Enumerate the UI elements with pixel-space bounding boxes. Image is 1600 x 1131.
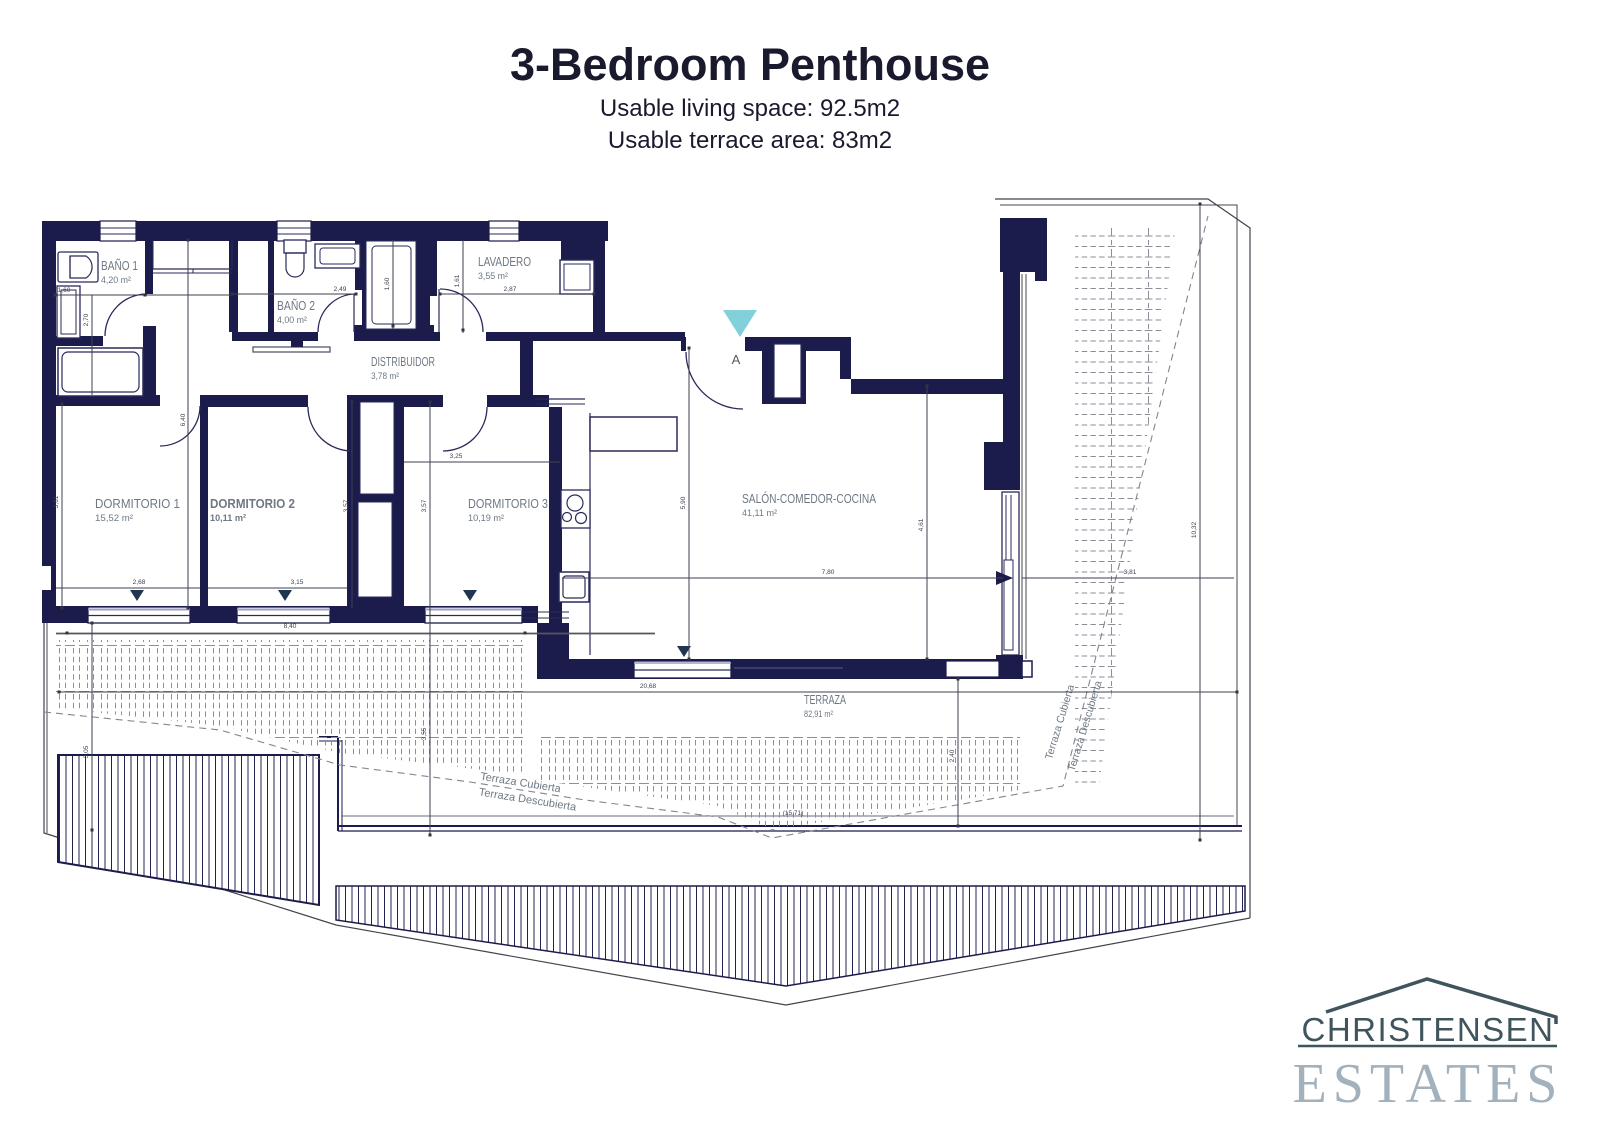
svg-text:DORMITORIO 1: DORMITORIO 1 bbox=[95, 496, 180, 511]
svg-text:3,81: 3,81 bbox=[1124, 569, 1137, 576]
svg-text:3,61: 3,61 bbox=[53, 495, 60, 508]
svg-text:SALÓN-COMEDOR-COCINA: SALÓN-COMEDOR-COCINA bbox=[742, 491, 876, 506]
svg-text:Usable living space: 92.5m2: Usable living space: 92.5m2 bbox=[600, 95, 900, 122]
svg-text:3,15: 3,15 bbox=[291, 579, 304, 586]
svg-text:3-Bedroom Penthouse: 3-Bedroom Penthouse bbox=[510, 39, 990, 90]
svg-text:5,90: 5,90 bbox=[680, 496, 687, 509]
svg-text:3,78 m²: 3,78 m² bbox=[371, 371, 399, 382]
svg-text:4,20 m²: 4,20 m² bbox=[101, 275, 131, 286]
svg-text:2,70: 2,70 bbox=[83, 313, 90, 326]
svg-text:4,00 m²: 4,00 m² bbox=[277, 315, 307, 326]
svg-text:2,68: 2,68 bbox=[133, 579, 146, 586]
svg-text:(15,71): (15,71) bbox=[783, 810, 804, 817]
svg-text:6,40: 6,40 bbox=[180, 413, 187, 426]
svg-text:DISTRIBUIDOR: DISTRIBUIDOR bbox=[371, 354, 435, 369]
svg-text:3,57: 3,57 bbox=[421, 499, 428, 512]
svg-text:Usable terrace area: 83m2: Usable terrace area: 83m2 bbox=[608, 127, 892, 154]
svg-text:CHRISTENSEN: CHRISTENSEN bbox=[1301, 1011, 1554, 1048]
svg-text:41,11 m²: 41,11 m² bbox=[742, 508, 777, 519]
svg-text:DORMITORIO 2: DORMITORIO 2 bbox=[210, 496, 295, 511]
svg-text:3,25: 3,25 bbox=[450, 453, 463, 460]
svg-text:DORMITORIO 3: DORMITORIO 3 bbox=[468, 496, 548, 511]
svg-text:A: A bbox=[732, 352, 741, 367]
svg-text:2,49: 2,49 bbox=[334, 286, 347, 293]
svg-text:ESTATES: ESTATES bbox=[1293, 1053, 1564, 1115]
svg-text:3,55: 3,55 bbox=[421, 727, 428, 740]
svg-text:8,40: 8,40 bbox=[284, 623, 297, 630]
svg-text:10,32: 10,32 bbox=[1191, 521, 1198, 538]
svg-text:7,80: 7,80 bbox=[822, 569, 835, 576]
svg-text:1,60: 1,60 bbox=[58, 287, 71, 294]
svg-text:15,52 m²: 15,52 m² bbox=[95, 513, 133, 524]
svg-text:10,11 m²: 10,11 m² bbox=[210, 513, 246, 524]
svg-text:TERRAZA: TERRAZA bbox=[804, 692, 846, 707]
svg-text:3,55 m²: 3,55 m² bbox=[478, 271, 508, 282]
svg-text:BAÑO 2: BAÑO 2 bbox=[277, 298, 315, 313]
svg-text:3,57: 3,57 bbox=[343, 499, 350, 512]
svg-text:2,87: 2,87 bbox=[504, 286, 517, 293]
svg-text:BAÑO 1: BAÑO 1 bbox=[101, 258, 138, 273]
svg-text:82,91 m²: 82,91 m² bbox=[804, 709, 833, 720]
svg-text:10,19 m²: 10,19 m² bbox=[468, 513, 504, 524]
svg-text:1,61: 1,61 bbox=[454, 274, 461, 287]
svg-text:20,68: 20,68 bbox=[640, 683, 657, 690]
svg-text:3,05: 3,05 bbox=[83, 745, 90, 758]
svg-text:2,40: 2,40 bbox=[949, 749, 956, 762]
svg-text:LAVADERO: LAVADERO bbox=[478, 254, 531, 269]
svg-text:4,61: 4,61 bbox=[918, 518, 925, 531]
svg-text:1,60: 1,60 bbox=[384, 277, 391, 290]
